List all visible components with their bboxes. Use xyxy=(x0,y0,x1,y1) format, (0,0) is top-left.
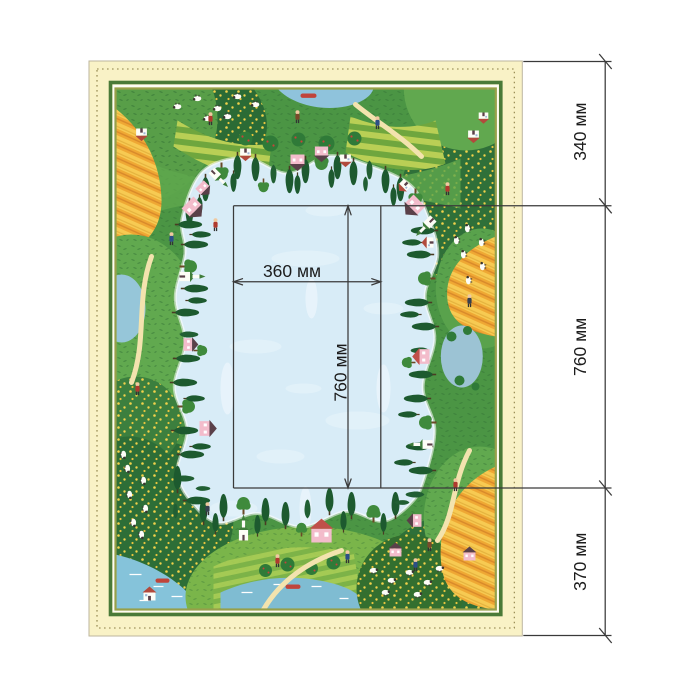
svg-text:760 мм: 760 мм xyxy=(570,318,590,376)
svg-text:760 мм: 760 мм xyxy=(331,343,351,401)
svg-text:340 мм: 340 мм xyxy=(570,103,590,161)
svg-text:370 мм: 370 мм xyxy=(570,533,590,591)
svg-text:360 мм: 360 мм xyxy=(263,261,321,281)
